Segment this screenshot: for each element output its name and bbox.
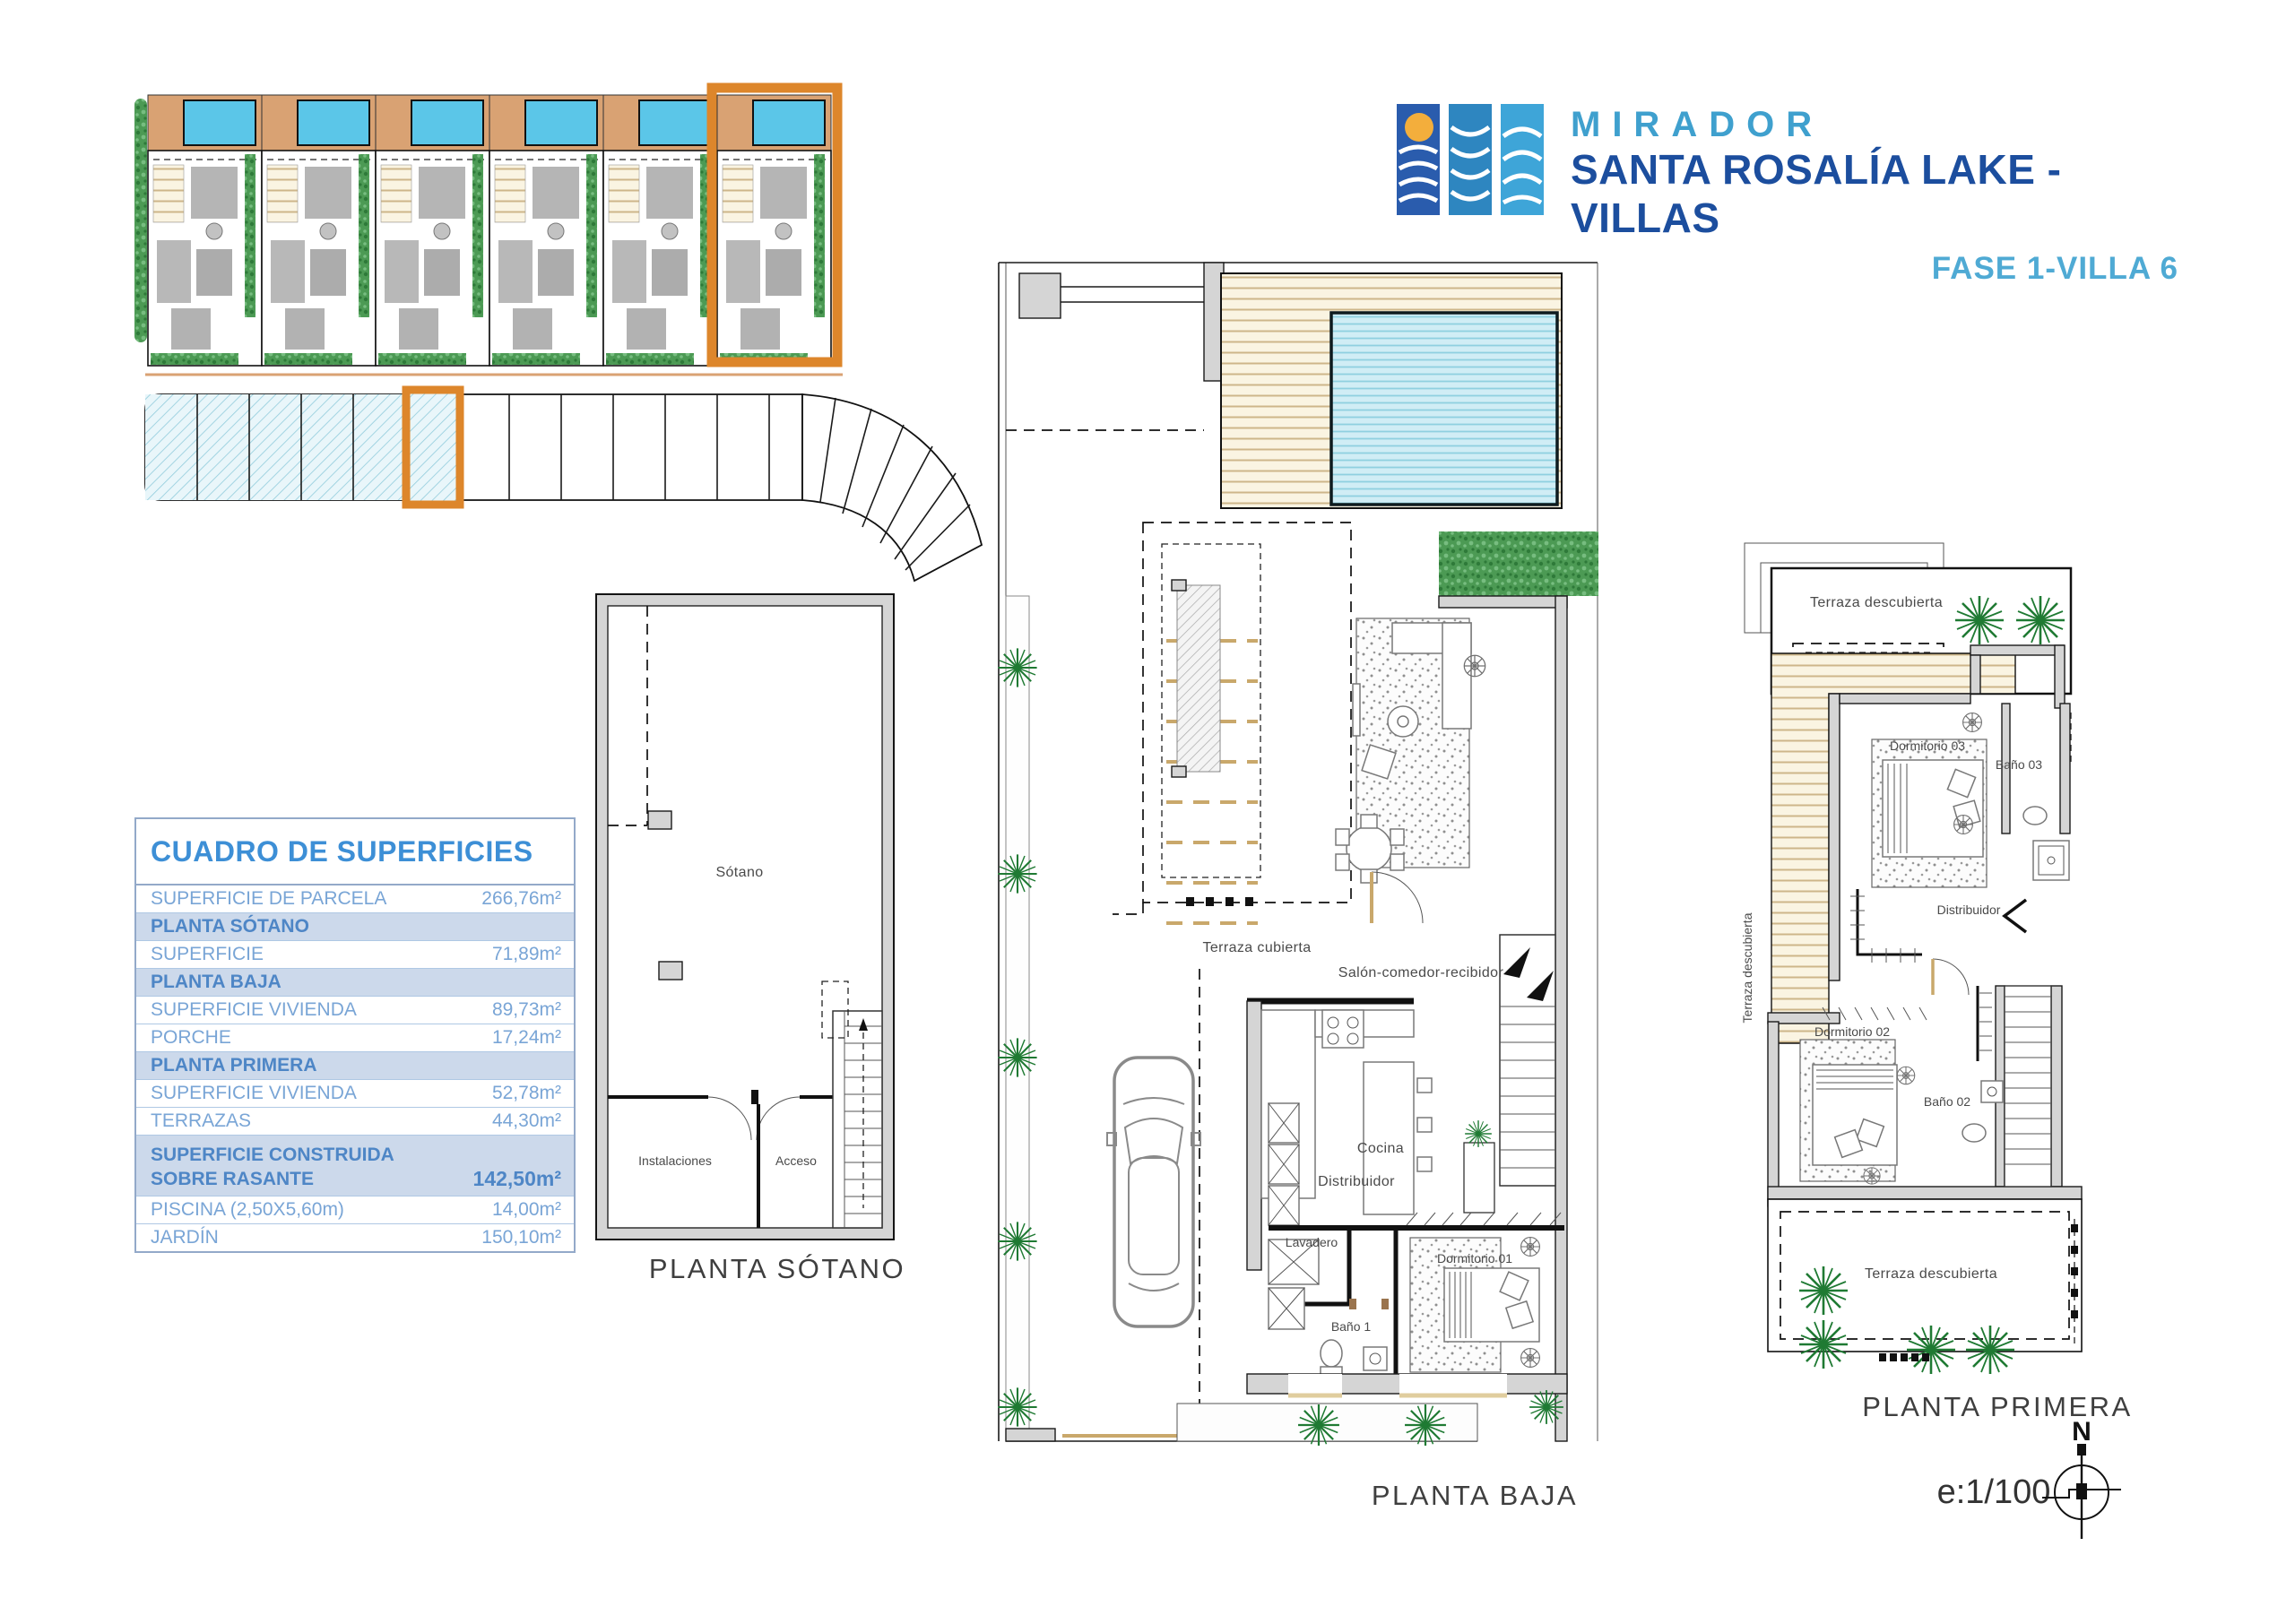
- baja-hatch-strip: [1177, 585, 1220, 772]
- planta-primera-plan: Terraza descubierta Terraza descubierta …: [1737, 538, 2187, 1434]
- site-hedge-left: [134, 99, 147, 342]
- plan-title-baja: PLANTA BAJA: [1372, 1480, 1578, 1511]
- row-header-planta-sotano: PLANTA SÓTANO: [136, 913, 574, 941]
- row-terrazas: TERRAZAS 44,30m²: [136, 1108, 574, 1136]
- primera-dormitorio02: [1800, 1040, 1915, 1184]
- planta-baja-plan: Terraza cubierta Salón-comedor-recibidor…: [973, 246, 1618, 1555]
- baja-car: [1107, 1058, 1200, 1326]
- row-baja-vivienda: SUPERFICIE VIVIENDA 89,73m²: [136, 997, 574, 1024]
- room-label-terraza-lat: Terraza descubierta: [1740, 912, 1754, 1023]
- room-label-cocina: Cocina: [1357, 1141, 1404, 1156]
- svg-text:N: N: [2072, 1417, 2091, 1447]
- room-label-dormitorio01: Dormitorio 01: [1437, 1251, 1512, 1266]
- logo-sun-icon: [1405, 113, 1433, 142]
- room-label-bano03: Baño 03: [1996, 757, 2042, 772]
- brand-logo: [1397, 104, 1547, 215]
- baja-pool: [1331, 313, 1557, 505]
- villa-row: [148, 88, 837, 366]
- logo-bar-dark: [1397, 104, 1440, 215]
- room-label-salon: Salón-comedor-recibidor: [1338, 965, 1504, 980]
- brand-name-main: SANTA ROSALÍA LAKE - VILLAS: [1571, 145, 2178, 242]
- primera-terrace-bottom: [1768, 1199, 2082, 1374]
- row-piscina: PISCINA (2,50X5,60m) 14,00m²: [136, 1196, 574, 1224]
- baja-living-room: [1336, 618, 1485, 883]
- north-arrow-icon: N: [2042, 1417, 2121, 1539]
- logo-bar-mid: [1449, 104, 1492, 215]
- room-label-bano02: Baño 02: [1924, 1094, 1970, 1109]
- brand-text: MIRADOR SANTA ROSALÍA LAKE - VILLAS FASE…: [1571, 104, 2178, 287]
- baja-entry-gate: [1006, 263, 1224, 430]
- villa-pool: [184, 100, 255, 145]
- row-superficie-parcela: SUPERFICIE DE PARCELA 266,76m²: [136, 885, 574, 913]
- villa-unit-3: [376, 95, 489, 366]
- row-sotano-superficie: SUPERFICIE 71,89m²: [136, 941, 574, 969]
- room-label-terraza-cubierta: Terraza cubierta: [1202, 940, 1311, 955]
- room-label-lavadero: Lavadero: [1286, 1235, 1338, 1249]
- baja-right-wall: [1555, 596, 1567, 1441]
- room-label-distribuidor-p1: Distribuidor: [1937, 903, 2001, 917]
- scale-label: e:1/100: [1937, 1473, 2051, 1511]
- parking-hatched-zone: [145, 394, 405, 500]
- villa-unit-2: [262, 95, 376, 366]
- planta-sotano-plan: Sótano Instalaciones Acceso PLANTA SÓTAN…: [569, 581, 928, 1298]
- room-label-instalaciones: Instalaciones: [638, 1153, 712, 1168]
- site-plan: [134, 79, 1031, 652]
- row-header-planta-baja: PLANTA BAJA: [136, 969, 574, 997]
- villa-unit-4: [489, 95, 603, 366]
- plan-title-sotano: PLANTA SÓTANO: [649, 1253, 905, 1284]
- villa-unit-1: [148, 95, 262, 366]
- logo-bar-light: [1501, 104, 1544, 215]
- room-label-bano1: Baño 1: [1331, 1319, 1372, 1334]
- row-superficie-construida: SUPERFICIE CONSTRUIDA SOBRE RASANTE 142,…: [136, 1136, 574, 1196]
- room-label-terraza-inf: Terraza descubierta: [1865, 1266, 1997, 1282]
- villa-unit-5: [603, 95, 717, 366]
- parking-fan: [802, 394, 982, 581]
- compass-block: e:1/100 N: [1927, 1403, 2223, 1600]
- parking-stall-highlight: [406, 390, 460, 505]
- brand-name-top: MIRADOR: [1571, 104, 2178, 145]
- baja-hedge-top-right: [1439, 531, 1598, 596]
- row-header-planta-primera: PLANTA PRIMERA: [136, 1052, 574, 1080]
- room-label-terraza-sup: Terraza descubierta: [1810, 595, 1943, 610]
- villa-unit-6-highlighted: [717, 95, 831, 366]
- surfaces-table-title: CUADRO DE SUPERFICIES: [136, 819, 574, 885]
- sotano-column: [659, 962, 682, 980]
- row-primera-vivienda: SUPERFICIE VIVIENDA 52,78m²: [136, 1080, 574, 1108]
- row-porche: PORCHE 17,24m²: [136, 1024, 574, 1052]
- room-label-acceso: Acceso: [775, 1153, 817, 1168]
- room-label-dormitorio03: Dormitorio 03: [1890, 739, 1965, 753]
- baja-bottom-garden: [1177, 1390, 1563, 1446]
- parking-strip: [145, 390, 982, 581]
- plan-sheet: MIRADOR SANTA ROSALÍA LAKE - VILLAS FASE…: [0, 0, 2295, 1624]
- surfaces-table: CUADRO DE SUPERFICIES SUPERFICIE DE PARC…: [134, 817, 576, 1253]
- brand-phase: FASE 1-VILLA 6: [1571, 251, 2178, 287]
- room-label-distribuidor: Distribuidor: [1318, 1174, 1395, 1189]
- sotano-column: [648, 811, 671, 829]
- room-label-sotano: Sótano: [715, 865, 763, 880]
- primera-stairs: [2005, 986, 2051, 1187]
- row-jardin: JARDÍN 150,10m²: [136, 1224, 574, 1251]
- baja-left-garden: [998, 596, 1055, 1441]
- room-label-dormitorio02: Dormitorio 02: [1814, 1024, 1890, 1039]
